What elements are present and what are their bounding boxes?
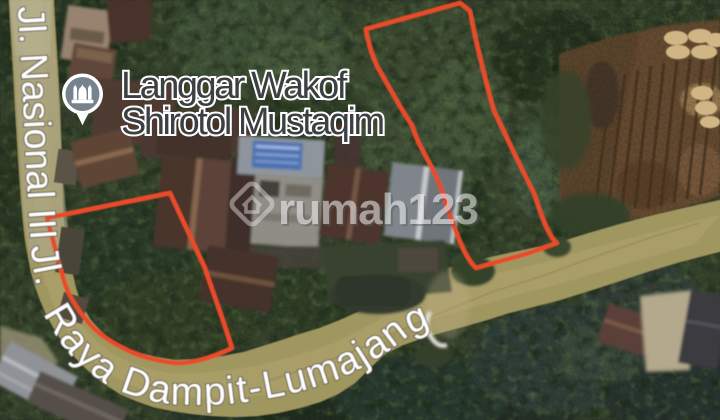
svg-text:Jl.: Jl. [22, 242, 71, 289]
svg-text:Shirotol Mustaqim: Shirotol Mustaqim [121, 101, 383, 143]
svg-text:rumah123: rumah123 [278, 185, 478, 234]
